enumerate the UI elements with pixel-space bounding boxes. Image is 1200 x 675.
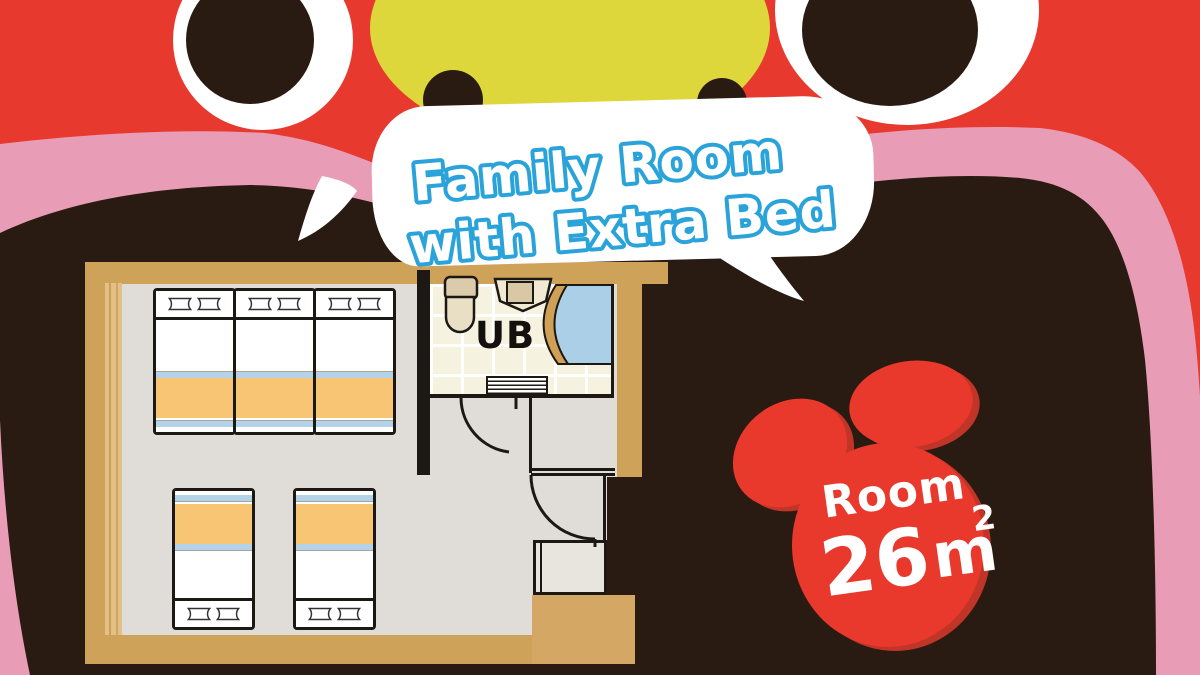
speech-bubble-text: Family Room with Extra Bed [368, 96, 888, 296]
promo-illustration-canvas: UB [0, 0, 1200, 675]
